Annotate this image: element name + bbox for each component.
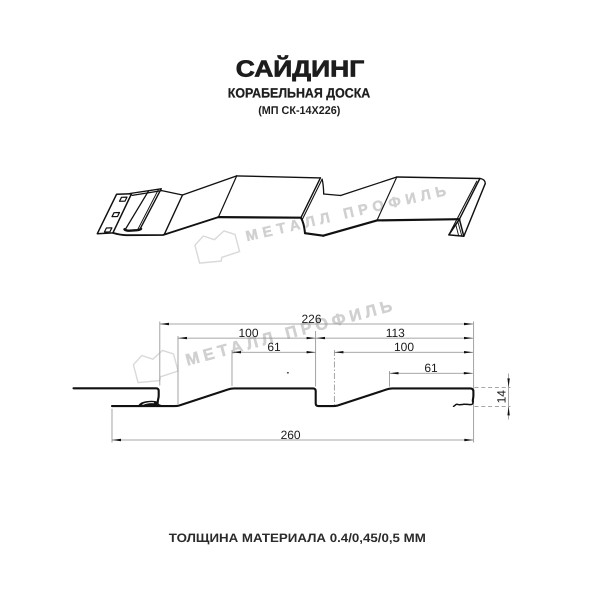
svg-text:КОРАБЕЛЬНАЯ ДОСКА: КОРАБЕЛЬНАЯ ДОСКА [228, 86, 371, 101]
svg-text:61: 61 [267, 340, 281, 354]
svg-text:(МП СК-14Х226): (МП СК-14Х226) [258, 105, 340, 117]
svg-text:61: 61 [424, 361, 438, 375]
svg-text:100: 100 [238, 326, 258, 340]
svg-text:МЕТАЛЛ ПРОФИЛЬ: МЕТАЛЛ ПРОФИЛЬ [244, 183, 447, 245]
svg-text:113: 113 [386, 326, 405, 340]
svg-text:226: 226 [301, 312, 321, 326]
svg-text:260: 260 [281, 428, 301, 442]
svg-text:САЙДИНГ: САЙДИНГ [236, 56, 365, 82]
svg-text:100: 100 [394, 340, 414, 354]
svg-text:14: 14 [494, 390, 508, 404]
svg-text:МЕТАЛЛ ПРОФИЛЬ: МЕТАЛЛ ПРОФИЛЬ [184, 297, 395, 370]
svg-text:ТОЛЩИНА МАТЕРИАЛА 0.4/0,45/0,5: ТОЛЩИНА МАТЕРИАЛА 0.4/0,45/0,5 ММ [169, 531, 426, 545]
